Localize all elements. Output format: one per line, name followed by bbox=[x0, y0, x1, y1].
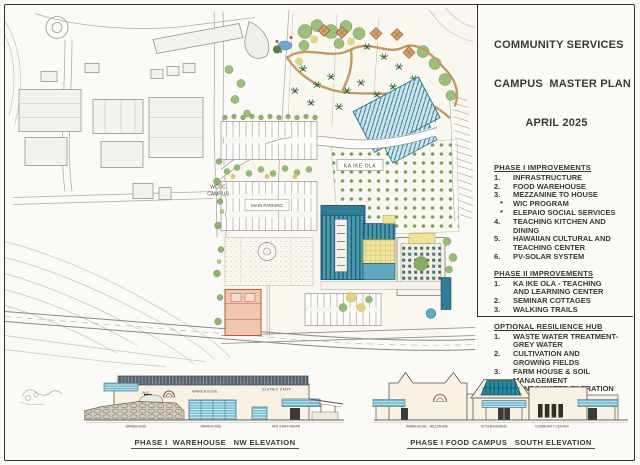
item-number: 3. bbox=[494, 191, 513, 200]
item-bullet: * bbox=[500, 209, 513, 218]
kitchen-dining-building bbox=[363, 216, 395, 280]
item-text: KA IKE OLA - TEACHING AND LEARNING CENTE… bbox=[513, 280, 619, 298]
rock-wall bbox=[84, 402, 184, 421]
window-wall bbox=[189, 400, 236, 420]
item-number: 1. bbox=[494, 333, 513, 351]
awning bbox=[578, 400, 618, 407]
elevation-nw: WIC WAREHOUSE ELEPAIO STAFF WAREHOUSE WA… bbox=[84, 370, 346, 447]
item-number: 4. bbox=[494, 218, 513, 236]
base-label: WAREHOUSE - MEZZANINE bbox=[406, 425, 448, 429]
window bbox=[252, 407, 267, 420]
door bbox=[401, 408, 408, 420]
section-heading: PHASE I IMPROVEMENTS bbox=[494, 164, 619, 173]
site-plan-drawing: KA IKE OLA bbox=[5, 5, 477, 368]
wall-label-elepaio: ELEPAIO STAFF bbox=[263, 388, 292, 392]
covered-walkway bbox=[321, 282, 441, 290]
site-label-ka-ike-ola: KA IKE OLA bbox=[344, 164, 376, 170]
list-item: 1.WASTE WATER TREATMENT-GREY WATER bbox=[494, 333, 619, 351]
awning bbox=[482, 401, 526, 408]
margin-sketch bbox=[16, 372, 80, 406]
list-item: 4.TEACHING KITCHEN AND DINING bbox=[494, 218, 619, 236]
list-item: 2.CULTIVATION AND GROWING FIELDS bbox=[494, 350, 619, 368]
item-text: WALKING TRAILS bbox=[513, 306, 619, 315]
title-line-2: CAMPUS MASTER PLAN bbox=[494, 78, 619, 91]
base-label: WAREHOUSE bbox=[126, 425, 147, 429]
base-label: COMMUNITY CENTER bbox=[535, 425, 569, 429]
door bbox=[588, 408, 597, 420]
title-line-3: APRIL 2025 bbox=[494, 117, 619, 130]
item-number: 2. bbox=[494, 350, 513, 368]
wall-label-warehouse: WAREHOUSE bbox=[192, 390, 218, 394]
plan-sheet: KA IKE OLA bbox=[0, 0, 640, 465]
site-label-main-parking: MAIN PARKING bbox=[251, 203, 283, 208]
farm-house-building bbox=[225, 290, 261, 336]
list-item: 3.WALKING TRAILS bbox=[494, 306, 619, 315]
list-item: 6.PV-SOLAR SYSTEM bbox=[494, 253, 619, 262]
solar-roof-band bbox=[118, 376, 308, 385]
item-text: HAWAIIAN CULTURAL AND TEACHING CENTER bbox=[513, 235, 619, 253]
mezzanine-window-band bbox=[104, 383, 138, 391]
item-text: PV-SOLAR SYSTEM bbox=[513, 253, 619, 262]
elevation-south-title: PHASE I FOOD CAMPUS SOUTH ELEVATION bbox=[372, 438, 630, 447]
warehouse-mezzanine-wall bbox=[389, 373, 467, 421]
item-text: CULTIVATION AND GROWING FIELDS bbox=[513, 350, 619, 368]
wall-label-wic: WIC bbox=[142, 391, 150, 395]
elevation-south-drawing: WAREHOUSE - MEZZANINE KITCHEN/DINING COM… bbox=[372, 370, 630, 430]
title-line-1: COMMUNITY SERVICES bbox=[494, 39, 619, 52]
base-label: WAREHOUSE bbox=[201, 425, 222, 429]
legend-panel: COMMUNITY SERVICES CAMPUS MASTER PLAN AP… bbox=[477, 5, 633, 317]
elevation-south: WAREHOUSE - MEZZANINE KITCHEN/DINING COM… bbox=[372, 370, 630, 447]
elevation-nw-title: PHASE I WAREHOUSE NW ELEVATION bbox=[84, 438, 346, 447]
list-item: 5.HAWAIIAN CULTURAL AND TEACHING CENTER bbox=[494, 235, 619, 253]
section-phase-2: PHASE II IMPROVEMENTS 1.KA IKE OLA - TEA… bbox=[494, 270, 619, 315]
item-number: 5. bbox=[494, 235, 513, 253]
warehouse-building bbox=[321, 206, 365, 280]
item-number: 6. bbox=[494, 253, 513, 262]
section-phase-1: PHASE I IMPROVEMENTS 1.INFRASTRUCTURE 2.… bbox=[494, 164, 619, 262]
site-label-campus: CAMPUS bbox=[207, 192, 229, 198]
section-heading: PHASE II IMPROVEMENTS bbox=[494, 270, 619, 279]
base-label: HFB STAFF ADMIN bbox=[272, 425, 301, 429]
awning bbox=[373, 400, 405, 407]
item-text: TEACHING KITCHEN AND DINING bbox=[513, 218, 619, 236]
item-text: WASTE WATER TREATMENT-GREY WATER bbox=[513, 333, 619, 351]
main-parking: MAIN PARKING bbox=[221, 182, 317, 231]
sheet-title: COMMUNITY SERVICES CAMPUS MASTER PLAN AP… bbox=[494, 13, 619, 156]
section-heading: OPTIONAL RESILIENCE HUB bbox=[494, 323, 619, 332]
list-item: 1.KA IKE OLA - TEACHING AND LEARNING CEN… bbox=[494, 280, 619, 298]
low-wall bbox=[312, 412, 338, 420]
item-number: 3. bbox=[494, 306, 513, 315]
elevation-nw-drawing: WIC WAREHOUSE ELEPAIO STAFF WAREHOUSE WA… bbox=[84, 370, 346, 430]
item-number: 1. bbox=[494, 280, 513, 298]
site-label-wccc: WCCC bbox=[210, 185, 226, 191]
door bbox=[290, 408, 300, 420]
base-label: KITCHEN/DINING bbox=[481, 425, 508, 429]
